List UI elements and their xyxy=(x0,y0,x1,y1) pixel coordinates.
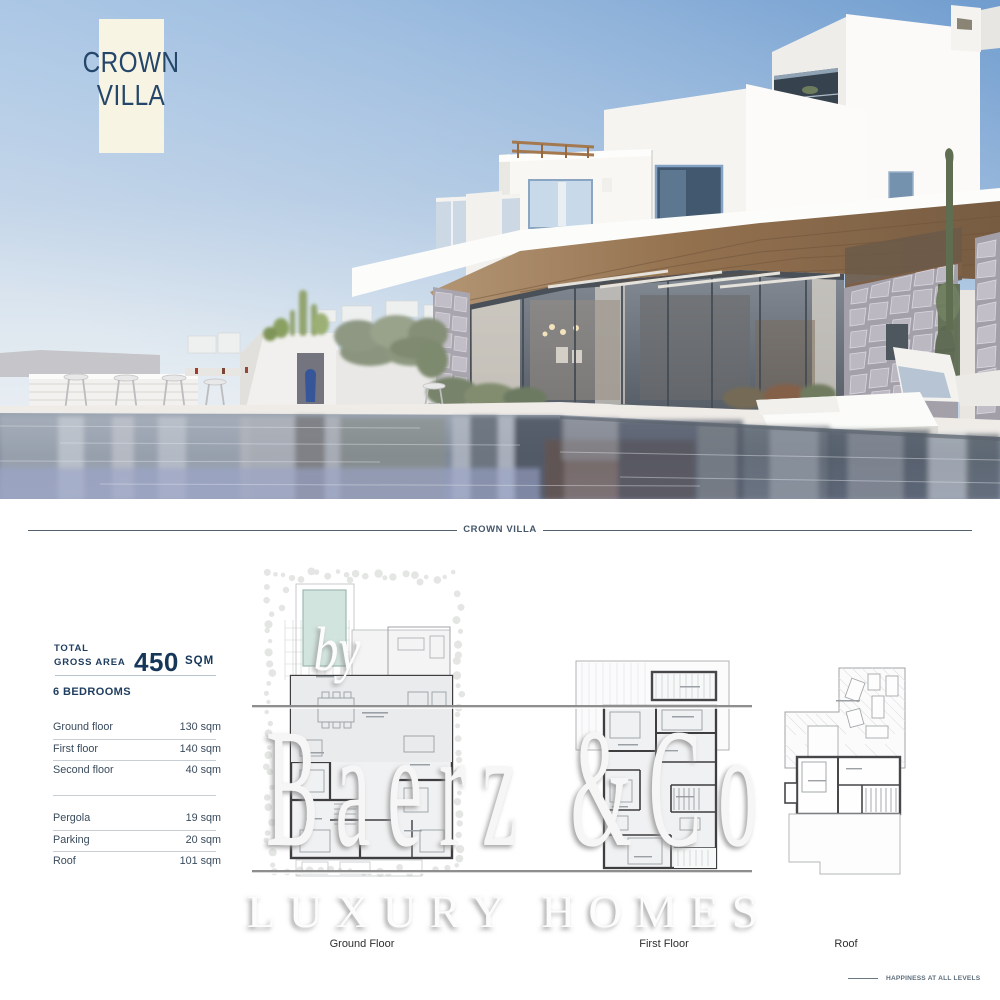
svg-text:LUXURY HOMES: LUXURY HOMES xyxy=(247,886,758,938)
svg-text:Baerz &Co: Baerz &Co xyxy=(266,694,774,883)
svg-text:by: by xyxy=(314,616,361,684)
